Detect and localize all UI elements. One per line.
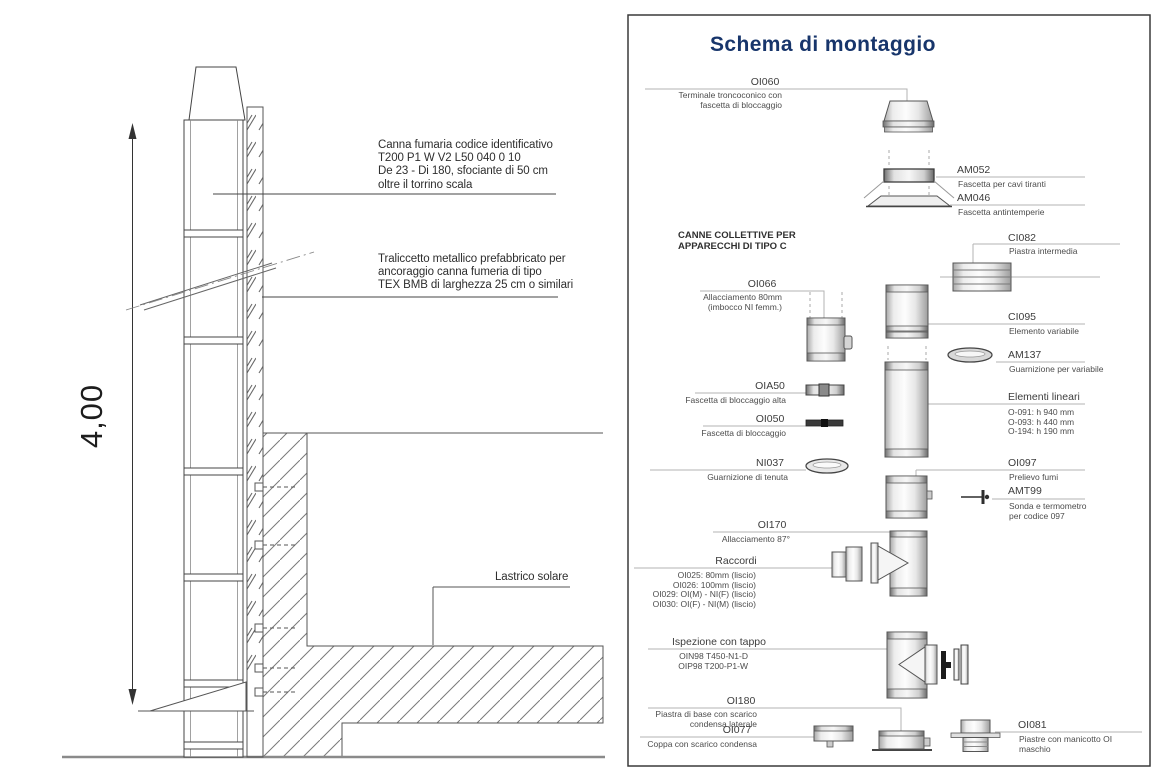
label-ni037: NI037 <box>740 457 800 469</box>
heading-line: APPARECCHI DI TIPO C <box>678 242 784 253</box>
label-ispezione-desc: OIN98 T450-N1-DOIP98 T200-P1-W <box>678 652 748 671</box>
chimney-shaft <box>184 120 243 757</box>
note-line: De 23 - Di 180, sfociante di 50 cm <box>378 165 553 178</box>
canna-fumaria-note: Canna fumaria codice identificativo T200… <box>378 139 553 192</box>
label-oi050: OI050 <box>740 413 800 425</box>
note-line: oltre il torrino scala <box>378 179 553 192</box>
label-oi081-desc: Piastre con manicotto OImaschio <box>1019 735 1112 754</box>
part-oi097-sampling <box>886 476 932 518</box>
part-ci082-plate <box>953 263 1011 291</box>
label-ispezione: Ispezione con tappo <box>672 636 766 648</box>
panel-title: Schema di montaggio <box>710 33 936 57</box>
label-ci082-desc: Piastra intermedia <box>1009 247 1078 257</box>
part-ci095-variable <box>886 285 928 338</box>
label-raccordi: Raccordi <box>706 555 766 567</box>
label-oi066-desc: Allacciamento 80mm(imbocco NI femm.) <box>703 293 782 312</box>
part-am137-gasket <box>948 348 992 362</box>
page: 4,00 Canna fumaria codice identificativo… <box>0 0 1170 780</box>
label-oi097: OI097 <box>1008 457 1037 469</box>
label-oi077-desc: Coppa con scarico condensa <box>647 740 757 750</box>
label-oi050-desc: Fascetta di bloccaggio <box>701 429 786 439</box>
label-ci082: CI082 <box>1008 232 1036 244</box>
dimension-label: 4,00 <box>74 376 130 456</box>
label-oi097-desc: Prelievo fumi <box>1009 473 1058 483</box>
label-elementi-lineari: Elementi lineari <box>1008 391 1080 403</box>
label-oi170-desc: Allacciamento 87° <box>722 535 790 545</box>
label-ci095: CI095 <box>1008 311 1036 323</box>
note-line: ancoraggio canna fumeria di tipo <box>378 266 573 279</box>
part-oi050-clamp <box>806 419 843 427</box>
heading-line: CANNE COLLETTIVE PER <box>678 231 784 242</box>
label-oi066: OI066 <box>732 278 792 290</box>
part-oi180-baseplate <box>872 731 932 750</box>
section-heading: CANNE COLLETTIVE PER APPARECCHI DI TIPO … <box>678 231 784 252</box>
part-oia50-clamp <box>806 384 844 396</box>
lastrico-label: Lastrico solare <box>495 571 568 584</box>
label-oi060: OI060 <box>735 76 795 88</box>
label-ni037-desc: Guarnizione di tenuta <box>707 473 788 483</box>
label-amt99-desc: Sonda e termometroper codice 097 <box>1009 502 1086 521</box>
label-am052: AM052 <box>957 164 990 176</box>
diagram-linework <box>0 0 1170 780</box>
note-line: TEX BMB di larghezza 25 cm o similari <box>378 279 573 292</box>
label-oi077: OI077 <box>707 724 767 736</box>
label-elementi-lineari-desc: O-091: h 940 mmO-093: h 440 mmO-194: h 1… <box>1008 408 1074 437</box>
label-raccordi-desc: OI025: 80mm (liscio)OI026: 100mm (liscio… <box>653 571 756 609</box>
label-am046-desc: Fascetta antintemperie <box>958 208 1044 218</box>
label-oia50: OIA50 <box>740 380 800 392</box>
note-line: Traliccetto metallico prefabbricato per <box>378 253 573 266</box>
traliccetto-note: Traliccetto metallico prefabbricato per … <box>378 253 573 293</box>
label-am046: AM046 <box>957 192 990 204</box>
part-oi066-connection <box>807 318 852 361</box>
wall-column <box>247 107 263 757</box>
label-oi060-desc: Terminale troncoconico confascetta di bl… <box>679 91 782 110</box>
label-ci095-desc: Elemento variabile <box>1009 327 1079 337</box>
label-am052-desc: Fascetta per cavi tiranti <box>958 180 1046 190</box>
note-line: Canna fumaria codice identificativo <box>378 139 553 152</box>
part-ni037-gasket <box>806 459 848 473</box>
part-am046-collar <box>866 196 952 207</box>
chimney-cap <box>189 67 245 120</box>
part-linear-element <box>885 362 928 457</box>
note-line: T200 P1 W V2 L50 040 0 10 <box>378 152 553 165</box>
label-oi170: OI170 <box>742 519 802 531</box>
label-amt99: AMT99 <box>1008 485 1042 497</box>
label-oi180: OI180 <box>711 695 771 707</box>
part-oi060-terminal <box>883 101 934 132</box>
label-am137: AM137 <box>1008 349 1041 361</box>
label-am137-desc: Guarnizione per variabile <box>1009 365 1104 375</box>
label-oia50-desc: Fascetta di bloccaggio alta <box>685 396 786 406</box>
label-oi081: OI081 <box>1018 719 1047 731</box>
